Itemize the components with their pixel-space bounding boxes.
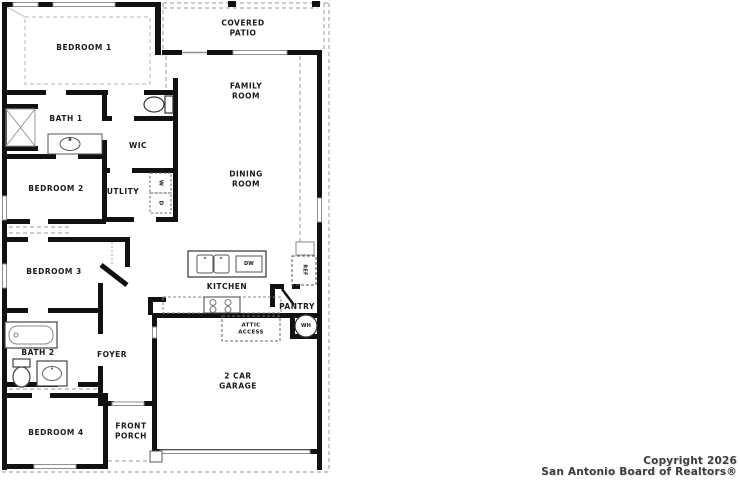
bath1-toilet-icon [144, 97, 164, 112]
label-refrigerator: REF [301, 264, 308, 275]
kitchen-cabinet [296, 242, 314, 255]
front-door-opening [112, 402, 144, 406]
room-label-dining-room: DINING ROOM [229, 169, 263, 189]
copyright-line2: San Antonio Board of Realtors® [541, 467, 737, 478]
window-bedroom4 [34, 465, 76, 469]
windows [3, 3, 322, 469]
room-label-family-room: FAMILY ROOM [230, 81, 262, 101]
room-label-covered-patio: COVERED PATIO [221, 18, 264, 38]
garage-entry-door [153, 327, 157, 338]
room-label-front-porch: FRONT PORCH [115, 421, 147, 441]
bath2-tub-icon [5, 322, 57, 348]
stove-icon [204, 297, 240, 313]
bath1-sink-counter [48, 134, 102, 154]
room-label-foyer: FOYER [97, 350, 127, 360]
room-label-bedroom3: BEDROOM 3 [26, 267, 81, 277]
window-dining-room [318, 198, 322, 222]
room-label-utility: UTLITY [107, 187, 139, 197]
room-label-bedroom1: BEDROOM 1 [56, 43, 111, 53]
window-bedroom1-top-left [13, 3, 38, 7]
room-label-wic: WIC [129, 141, 147, 151]
floorplan-image: BEDROOM 1 COVERED PATIO FAMILY ROOM BATH… [0, 0, 740, 480]
label-dryer: D [157, 201, 164, 206]
bath2-sink-icon [37, 361, 67, 386]
copyright-notice: Copyright 2026 San Antonio Board of Real… [541, 456, 737, 478]
kitchen-island [188, 251, 266, 277]
room-label-pantry: PANTRY [279, 302, 315, 312]
label-washer: W [157, 180, 164, 186]
bath1-shower [6, 109, 35, 146]
kitchen-counter [163, 297, 281, 313]
window-bedroom1-top-right [53, 3, 115, 7]
label-water-heater: WH [301, 323, 311, 330]
label-attic-access: ATTIC ACCESS [238, 322, 264, 335]
room-label-garage: 2 CAR GARAGE [219, 371, 257, 391]
angled-wall-bedroom3 [101, 265, 127, 285]
window-bedroom3 [3, 264, 7, 288]
bath2-toilet-icon [13, 359, 30, 387]
room-label-bath1: BATH 1 [49, 114, 82, 124]
room-label-bedroom4: BEDROOM 4 [28, 428, 83, 438]
room-label-kitchen: KITCHEN [207, 282, 247, 292]
porch-step [150, 451, 162, 462]
room-label-bedroom2: BEDROOM 2 [28, 184, 83, 194]
room-label-bath2: BATH 2 [21, 348, 54, 358]
label-dishwasher: DW [244, 261, 254, 268]
garage-door [160, 450, 310, 454]
window-bedroom2 [3, 196, 7, 220]
floorplan-drawing [0, 0, 740, 480]
window-family-room [233, 51, 287, 55]
exterior-walls [2, 1, 322, 470]
